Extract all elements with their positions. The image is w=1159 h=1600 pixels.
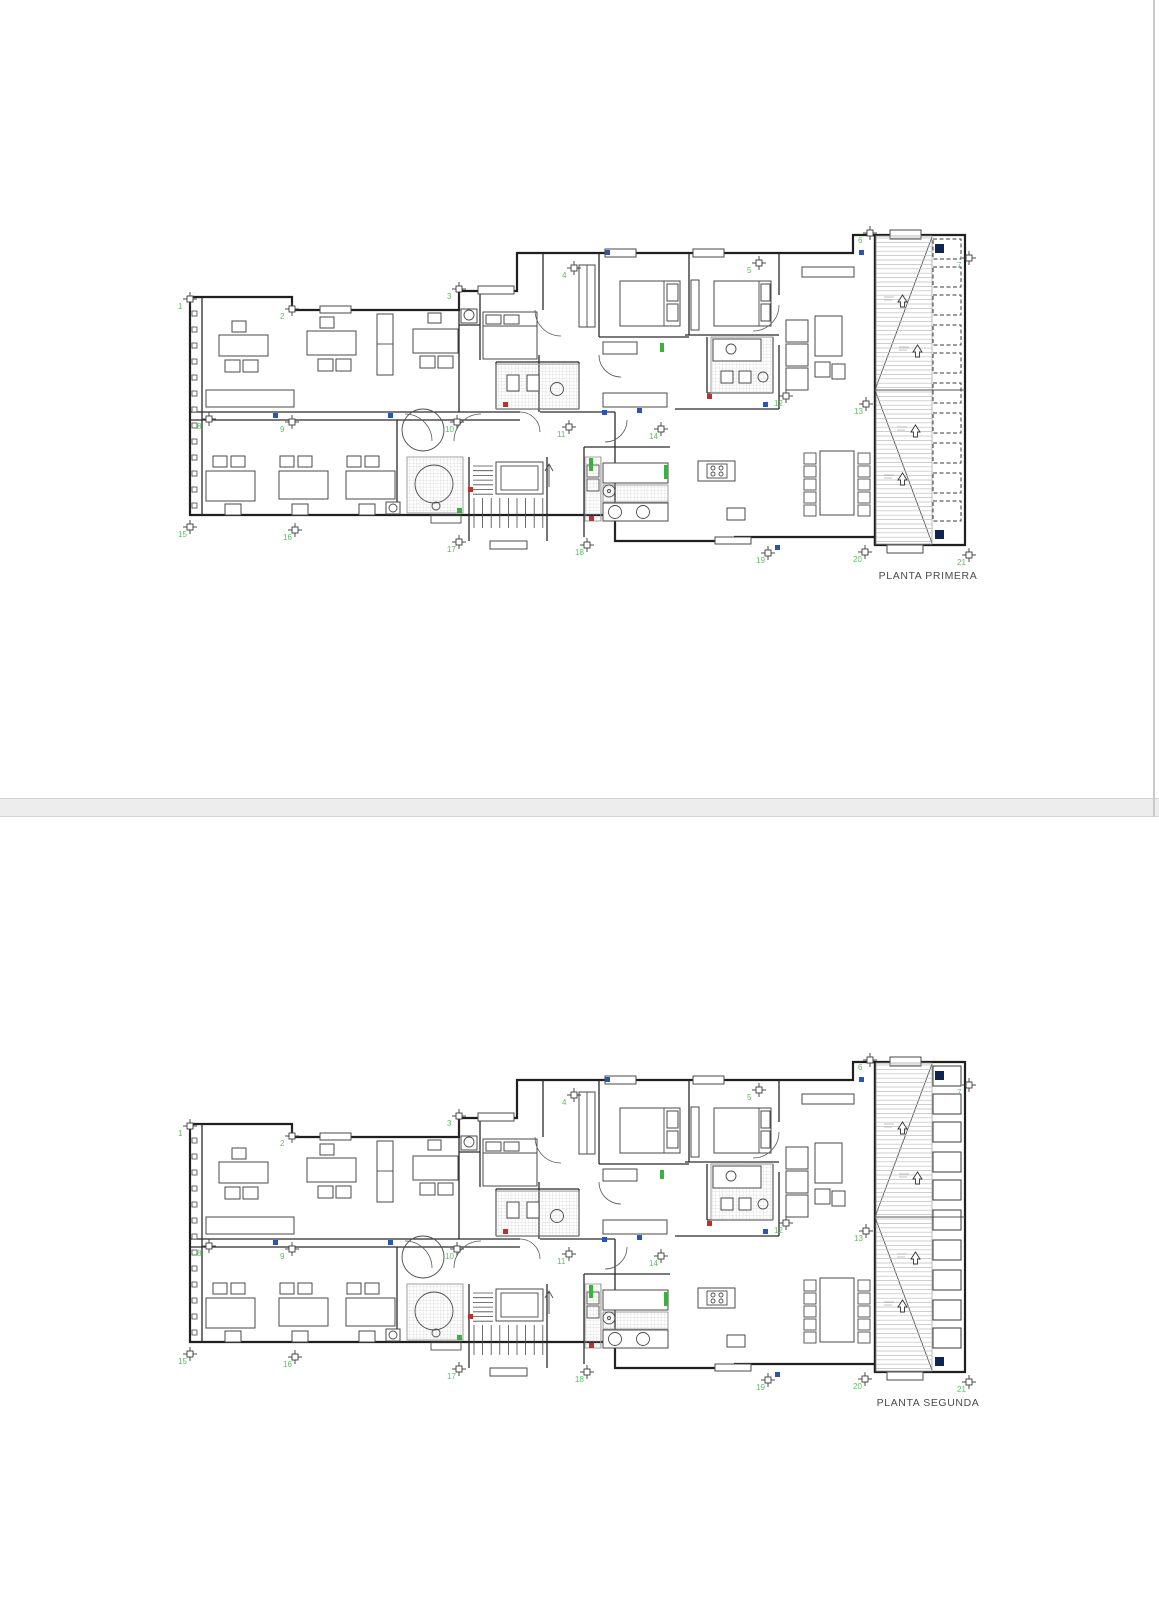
survey-marker-10: 10 [445,415,464,434]
marker-box [867,230,873,236]
marker-number: 8 [197,1249,202,1258]
plan-geometry-instance [190,1057,965,1380]
survey-marker-15: 15 [178,520,197,539]
marker-number: 5 [747,1093,752,1102]
marker-box [206,1243,212,1249]
survey-marker-4: 4 [562,261,581,280]
marker-box [454,1246,460,1252]
survey-marker-4: 4 [562,1088,581,1107]
marker-box [289,1246,295,1252]
survey-marker-19: 19 [756,1373,775,1392]
survey-marker-16: 16 [283,1350,302,1369]
survey-marker-17: 17 [447,535,466,554]
marker-box [765,550,771,556]
marker-number: 21 [957,558,966,567]
survey-marker-21: 21 [957,548,976,567]
survey-marker-8: 8 [197,1239,216,1258]
survey-marker-1: 1 [178,1119,197,1138]
marker-number: 13 [854,1234,863,1243]
marker-number: 21 [957,1385,966,1394]
survey-marker-17: 17 [447,1362,466,1381]
survey-marker-18: 18 [575,1365,594,1384]
marker-box [206,416,212,422]
marker-number: 12 [774,1226,783,1235]
marker-number: 15 [178,530,187,539]
marker-box [783,1220,789,1226]
survey-marker-8: 8 [197,412,216,431]
marker-box [187,296,193,302]
survey-marker-14: 14 [649,422,668,441]
survey-marker-2: 2 [280,1129,299,1148]
survey-marker-9: 9 [280,415,299,434]
survey-marker-20: 20 [853,1372,872,1391]
terrace-planter [933,325,961,345]
floor-plan-svg-primera: 123456789101112131415161718192021 PLANTA… [175,225,985,593]
marker-number: 11 [557,430,566,439]
terrace-planter [933,383,961,403]
marker-number: 14 [649,1259,658,1268]
marker-box [187,1123,193,1129]
marker-number: 18 [575,1375,584,1384]
marker-box [863,1228,869,1234]
marker-box [966,552,972,558]
marker-box [571,265,577,271]
terrace-planter [933,443,961,463]
survey-marker-11: 11 [557,1247,576,1266]
survey-marker-16: 16 [283,523,302,542]
survey-marker-11: 11 [557,420,576,439]
marker-box [584,1369,590,1375]
terrace-planter [933,1152,961,1172]
terrace-planters [933,1066,961,1348]
marker-number: 17 [447,545,456,554]
marker-number: 19 [756,556,765,565]
marker-box [456,539,462,545]
survey-marker-7: 7 [957,1078,976,1097]
marker-box [867,1057,873,1063]
marker-box [658,1253,664,1259]
survey-marker-21: 21 [957,1375,976,1394]
plan-drawing-primera: 123456789101112131415161718192021 PLANTA… [175,225,985,593]
terrace-planter [933,1180,961,1200]
plan-title: PLANTA SEGUNDA [877,1397,980,1409]
marker-number: 19 [756,1383,765,1392]
plan-geometry-instance [190,230,965,553]
marker-number: 3 [447,1119,452,1128]
marker-box [756,1087,762,1093]
terrace-planter [933,1240,961,1260]
marker-number: 11 [557,1257,566,1266]
marker-number: 2 [280,312,285,321]
marker-number: 6 [858,236,863,245]
marker-number: 10 [445,1252,454,1261]
marker-number: 5 [747,266,752,275]
marker-box [863,401,869,407]
marker-box [292,527,298,533]
plan-title: PLANTA PRIMERA [879,570,978,582]
marker-number: 16 [283,1360,292,1369]
marker-number: 9 [280,425,285,434]
marker-box [289,306,295,312]
survey-marker-2: 2 [280,302,299,321]
floor-plan-panel-segunda: 123456789101112131415161718192021 PLANTA… [0,817,1159,1600]
marker-number: 2 [280,1139,285,1148]
marker-number: 20 [853,555,862,564]
survey-marker-12: 12 [774,1216,793,1235]
survey-marker-9: 9 [280,1242,299,1261]
survey-marker-13: 13 [854,1224,873,1243]
plan-drawing-segunda: 123456789101112131415161718192021 PLANTA… [175,1052,985,1420]
marker-box [292,1354,298,1360]
marker-number: 9 [280,1252,285,1261]
marker-box [783,393,789,399]
survey-marker-7: 7 [957,251,976,270]
marker-box [862,1376,868,1382]
panel-divider [0,798,1159,817]
marker-box [566,1251,572,1257]
marker-box [966,255,972,261]
marker-box [756,260,762,266]
survey-marker-12: 12 [774,389,793,408]
terrace-planter [933,1270,961,1290]
survey-marker-5: 5 [747,1083,766,1102]
marker-number: 7 [957,1088,962,1097]
terrace-planter [933,353,961,373]
survey-marker-5: 5 [747,256,766,275]
floor-plan-panel-primera: 123456789101112131415161718192021 PLANTA… [0,0,1159,798]
survey-marker-20: 20 [853,545,872,564]
marker-box [966,1082,972,1088]
marker-box [456,1366,462,1372]
survey-marker-1: 1 [178,292,197,311]
survey-marker-10: 10 [445,1242,464,1261]
marker-number: 16 [283,533,292,542]
marker-number: 18 [575,548,584,557]
terrace-planters [933,239,961,521]
terrace-planter [933,1300,961,1320]
marker-box [566,424,572,430]
marker-box [862,549,868,555]
marker-box [765,1377,771,1383]
marker-number: 3 [447,292,452,301]
marker-box [658,426,664,432]
marker-box [289,419,295,425]
survey-marker-13: 13 [854,397,873,416]
marker-number: 17 [447,1372,456,1381]
floor-plan-svg-segunda: 123456789101112131415161718192021 PLANTA… [175,1052,985,1420]
marker-number: 14 [649,432,658,441]
marker-box [966,1379,972,1385]
marker-number: 12 [774,399,783,408]
marker-box [454,419,460,425]
marker-number: 4 [562,271,567,280]
marker-box [456,1113,462,1119]
marker-number: 1 [178,302,183,311]
marker-number: 6 [858,1063,863,1072]
marker-number: 15 [178,1357,187,1366]
marker-number: 7 [957,261,962,270]
terrace-planter [933,473,961,493]
survey-marker-15: 15 [178,1347,197,1366]
marker-box [571,1092,577,1098]
terrace-planter [933,1122,961,1142]
terrace-planter [933,1210,961,1230]
marker-number: 10 [445,425,454,434]
survey-marker-18: 18 [575,538,594,557]
marker-box [584,542,590,548]
marker-number: 13 [854,407,863,416]
marker-number: 4 [562,1098,567,1107]
terrace-planter [933,501,961,521]
page: { "page": {"width": 1159, "height": 1600… [0,0,1159,1600]
terrace-planter [933,413,961,433]
marker-box [456,286,462,292]
marker-box [289,1133,295,1139]
marker-number: 20 [853,1382,862,1391]
survey-marker-19: 19 [756,546,775,565]
marker-number: 1 [178,1129,183,1138]
marker-box [187,1351,193,1357]
terrace-planter [933,267,961,287]
survey-marker-14: 14 [649,1249,668,1268]
marker-box [187,524,193,530]
terrace-planter [933,1328,961,1348]
terrace-planter [933,295,961,315]
terrace-planter [933,1094,961,1114]
marker-number: 8 [197,422,202,431]
